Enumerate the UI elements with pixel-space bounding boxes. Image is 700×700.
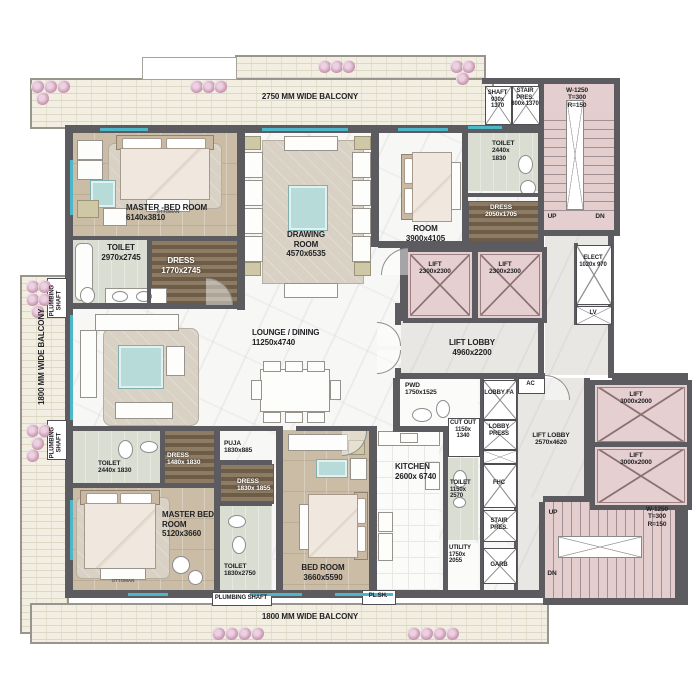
balcony-top-label: 2750 MM WIDE BALCONY: [200, 92, 420, 102]
armchair: [77, 160, 103, 180]
bed: [84, 503, 156, 569]
puja-label: PUJA 1830x885: [224, 440, 272, 455]
lift-large-2-label: LIFT 3000x2000: [606, 452, 666, 467]
window: [70, 160, 73, 215]
bed: [412, 152, 452, 222]
wc: [232, 536, 246, 554]
ottoman-bench: OTTOMAN: [100, 568, 146, 580]
corner-table: [244, 136, 261, 150]
wall: [160, 430, 164, 485]
chair: [263, 412, 281, 423]
chair: [251, 380, 262, 400]
flower: [238, 627, 251, 640]
sofa-seat: [244, 180, 263, 206]
wall: [276, 426, 283, 598]
sofa-seat: [244, 236, 263, 262]
seat: [103, 208, 127, 226]
wall: [371, 133, 379, 247]
lobby-press-label: LOBBY PRESS: [483, 424, 515, 437]
utility-label: UTILITY 1750x 2055: [449, 545, 478, 565]
flower: [462, 60, 475, 73]
coffee-table: [316, 459, 348, 478]
sofa-seat: [352, 152, 371, 178]
dress-1-label: DRESS 1770x2745: [155, 256, 207, 275]
lift-lobby-2-label: LIFT LOBBY 2570x4620: [520, 432, 582, 447]
ac-label: AC: [518, 381, 543, 388]
wall: [614, 78, 620, 235]
stair-bottom-up-label: UP: [543, 509, 563, 516]
window: [70, 500, 73, 560]
ottoman-bench: [299, 504, 309, 550]
flower: [407, 627, 420, 640]
wall: [543, 598, 688, 605]
garb-label: GARB: [483, 562, 515, 569]
window: [262, 128, 348, 131]
flower: [420, 627, 433, 640]
sofa: [284, 136, 338, 151]
planter-outline: [142, 57, 237, 80]
flower: [456, 72, 469, 85]
stair-top-rail: [566, 100, 584, 210]
pillow: [120, 493, 152, 504]
elect-label: ELECT 1020x 970: [578, 255, 608, 268]
flower: [225, 627, 238, 640]
wall: [369, 426, 377, 598]
lift-small-1-label: LIFT 2300x2300: [408, 261, 462, 276]
pillow: [357, 498, 366, 524]
stair-bottom-rail: [558, 536, 642, 558]
window: [100, 128, 148, 131]
toilet-2-label: TOILET 2440x 1830: [492, 140, 524, 162]
sofa-seat: [244, 152, 263, 178]
drawing-room-label: DRAWING ROOM 4570x6535: [281, 230, 331, 259]
wall: [218, 460, 272, 464]
service-box: [483, 450, 517, 464]
sofa-seat: [352, 208, 371, 234]
ottoman-label: OTTOMAN: [112, 578, 135, 583]
sofa-seat: [352, 236, 371, 262]
wc: [436, 400, 450, 418]
stair-top-spec-label: W-1250 T=300 R=150: [556, 87, 598, 109]
round-chair: [188, 570, 203, 585]
window: [70, 315, 73, 420]
floor-plan: OTTOMAN: [0, 0, 700, 700]
corner-table: [244, 262, 261, 276]
toilet-3-label: TOILET 2440x 1830: [98, 460, 132, 475]
wc: [80, 287, 95, 304]
corner-table: [354, 136, 371, 150]
wall: [612, 373, 688, 380]
side-table: [77, 200, 99, 218]
master-bed-1-label: MASTER -BED ROOM 6140x3810: [126, 203, 216, 222]
flower: [36, 92, 49, 105]
elect-box: [576, 245, 612, 305]
window: [128, 593, 168, 596]
lobby-fa-box: [483, 380, 517, 420]
pillow: [357, 526, 366, 552]
wall: [395, 303, 401, 325]
sofa-seat: [166, 346, 185, 376]
toilet-3-floor: [73, 430, 160, 483]
kitchen-sink: [400, 433, 418, 443]
sofa: [115, 402, 173, 419]
toilet-4-label: TOILET 1830x2750: [224, 563, 272, 578]
balcony-bottom-label: 1800 MM WIDE BALCONY: [210, 612, 410, 622]
flower: [433, 627, 446, 640]
chair: [330, 380, 341, 400]
dress-3-label: DRESS 1480x 1830: [167, 452, 201, 467]
pillow: [404, 188, 413, 214]
flower: [446, 627, 459, 640]
wall: [147, 238, 151, 304]
chair: [307, 361, 325, 372]
shaft-label: SHAFT 930x 1370: [485, 90, 510, 110]
wall: [214, 426, 220, 598]
bottom-balcony: [30, 603, 549, 644]
kitchen-floor: [377, 430, 439, 590]
sink: [412, 408, 432, 422]
plumbing-shaft-left-bottom-label: PLUMBING SHAFT: [49, 420, 62, 466]
top-balcony: [30, 78, 494, 129]
toilet-5-label: TOILET 1150x 2570: [450, 480, 478, 500]
lounge-label: LOUNGE / DINING 11250x4740: [252, 328, 352, 347]
stair-pres-1-label: STAIR PRES. 800x 1370: [511, 88, 539, 108]
wall: [73, 426, 283, 431]
balcony-left-label: 1800 MM WIDE BALCONY: [37, 267, 47, 447]
stair-pres-2-label: STAIR PRES.: [483, 518, 515, 531]
chair: [307, 412, 325, 423]
cut-out-label: CUT OUT 1150x 1340: [448, 420, 478, 440]
master-bed-2-label: MASTER BED ROOM 5120x3660: [162, 510, 214, 539]
wall: [395, 368, 401, 378]
flower: [26, 449, 39, 462]
pillow: [404, 158, 413, 184]
wall: [393, 378, 400, 428]
sofa: [80, 330, 97, 398]
flower: [57, 80, 70, 93]
lift-small-2: [473, 247, 547, 323]
dress-2-label: DRESS 2050x1705: [472, 204, 530, 219]
bed-room-label: BED ROOM 3660x5590: [292, 563, 354, 582]
sofa-seat: [244, 208, 263, 234]
wall: [237, 133, 245, 310]
stair-top-dn-label: DN: [590, 213, 610, 220]
wall: [73, 483, 218, 488]
plumbing-shaft-left-top-label: PLUMBING SHAFT: [49, 278, 62, 324]
bed: [120, 148, 210, 200]
kitchen-counter: [378, 512, 393, 532]
window: [468, 126, 502, 129]
dining-table: [260, 369, 330, 412]
stair-bottom-spec-label: W-1250 T=300 R=150: [636, 506, 678, 528]
wall: [468, 193, 538, 197]
coffee-table: [288, 185, 328, 231]
kitchen-counter: [378, 533, 393, 561]
flower: [44, 80, 57, 93]
plumbing-shaft-bottom-label: PLUMBING SHAFT: [212, 595, 270, 602]
fhc-label: FHC: [483, 480, 515, 487]
chair: [285, 412, 303, 423]
sofa: [284, 283, 338, 298]
stair-bottom-dn-label: DN: [542, 570, 562, 577]
pwd-label: PWD 1750x1525: [405, 382, 453, 397]
lobby-fa-label: LOBBY FA: [483, 390, 515, 397]
flower: [212, 627, 225, 640]
armchair: [350, 458, 367, 480]
window: [398, 128, 448, 131]
pillow: [86, 493, 118, 504]
sink: [140, 441, 158, 453]
dress-4-label: DRESS 1830x 1855: [237, 478, 271, 493]
sofa: [95, 314, 179, 331]
round-chair: [172, 556, 190, 574]
stair-top-up-label: UP: [542, 213, 562, 220]
flower: [342, 60, 355, 73]
chair: [263, 361, 281, 372]
wall: [218, 502, 272, 506]
kitchen-label: KITCHEN 2600x 6740: [395, 462, 440, 481]
lift-small-2-label: LIFT 2300x2300: [478, 261, 532, 276]
flower: [251, 627, 264, 640]
toilet-1-label: TOILET 2970x2745: [95, 243, 147, 262]
lift-lobby-1-label: LIFT LOBBY 4960x2200: [432, 338, 512, 357]
sofa: [288, 434, 348, 451]
armchair: [77, 140, 103, 160]
bed: [308, 494, 358, 558]
pl-sh-label: PL.SH.: [362, 593, 394, 600]
lv-label: LV: [580, 310, 606, 317]
wall: [482, 78, 620, 84]
sink: [112, 291, 128, 302]
sink: [228, 515, 246, 528]
corner-table: [354, 262, 371, 276]
sofa-seat: [352, 180, 371, 206]
ottoman-bench: [451, 162, 461, 210]
lift-large-1-label: LIFT 3000x2000: [606, 391, 666, 406]
pillow: [122, 138, 162, 149]
lift-small-1: [403, 247, 477, 323]
chair: [285, 361, 303, 372]
wc: [118, 440, 133, 459]
coffee-table: [118, 345, 164, 389]
room-label: ROOM 3900x4105: [398, 224, 453, 243]
wall: [73, 236, 241, 240]
pillow: [166, 138, 206, 149]
